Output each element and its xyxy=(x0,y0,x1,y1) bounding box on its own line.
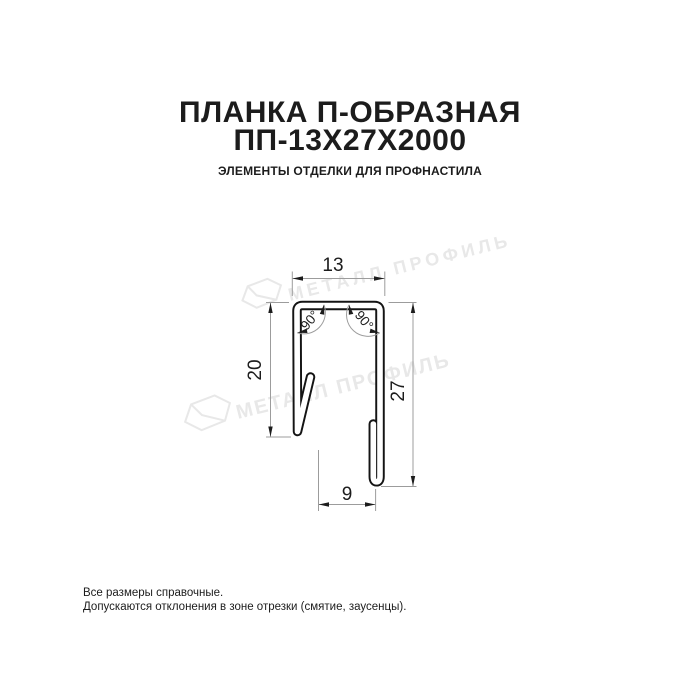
dimension-right-height: 27 xyxy=(381,303,417,487)
angle-label-right: 90° xyxy=(352,308,377,333)
dimension-label-9: 9 xyxy=(342,484,353,505)
footnote-line2: Допускаются отклонения в зоне отрезки (с… xyxy=(83,601,406,615)
watermark-text: МЕТАЛЛ ПРОФИЛЬ xyxy=(234,349,453,424)
arrow-up-icon xyxy=(411,303,415,313)
brand-logo-icon xyxy=(181,392,235,433)
dimension-label-27: 27 xyxy=(388,380,409,401)
footnote-line1: Все размеры справочные. xyxy=(83,587,406,601)
watermark-text: МЕТАЛЛ ПРОФИЛЬ xyxy=(286,230,513,305)
footnote-block: Все размеры справочные. Допускаются откл… xyxy=(83,587,406,614)
arrow-right-icon xyxy=(365,502,375,506)
arrow-down-icon xyxy=(411,476,415,486)
dimension-label-20: 20 xyxy=(245,359,266,380)
arrow-left-icon xyxy=(319,502,329,506)
dimension-lines xyxy=(266,303,291,438)
dimension-label-13: 13 xyxy=(322,255,343,276)
arrow-down-icon xyxy=(268,427,272,437)
arrow-up-icon xyxy=(268,303,272,313)
dimension-bottom-width: 9 xyxy=(319,450,376,511)
arrow-left-icon xyxy=(293,276,304,280)
brand-logo-icon xyxy=(239,276,285,311)
watermark-middle: МЕТАЛЛ ПРОФИЛЬ xyxy=(181,338,453,436)
